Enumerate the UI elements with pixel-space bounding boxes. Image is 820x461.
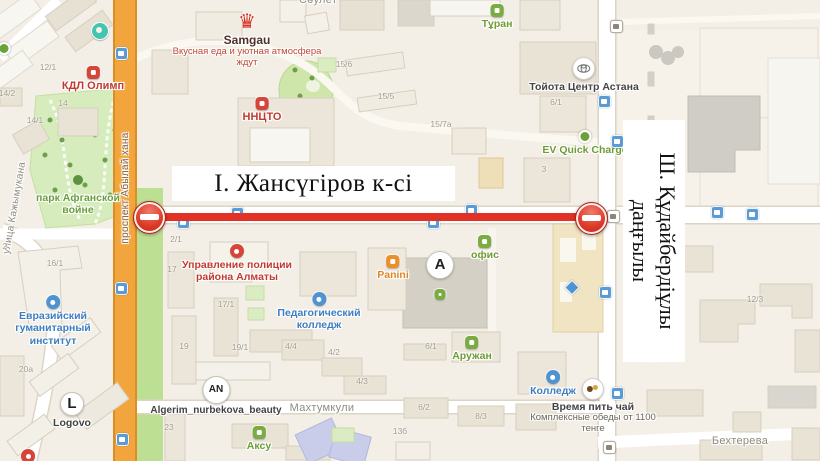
closure-layer	[0, 0, 820, 461]
street-closure-title-vertical-text: Ш. Құдайбердіұлы даңғылы	[623, 120, 685, 362]
map-canvas[interactable]: ♛SamgauВкусная еда и уютная атмосферажду…	[0, 0, 820, 461]
street-closure-title-horizontal: І. Жансүгіров к-сі	[172, 166, 455, 201]
no-entry-sign-icon	[575, 202, 608, 235]
no-entry-sign-icon	[133, 201, 166, 234]
vertical-title-line1: Ш. Құдайбердіұлы	[654, 152, 682, 329]
road-closure-line	[148, 213, 592, 221]
vertical-title-line2: даңғылы	[627, 200, 655, 282]
street-closure-title-vertical: Ш. Құдайбердіұлы даңғылы	[623, 120, 685, 362]
